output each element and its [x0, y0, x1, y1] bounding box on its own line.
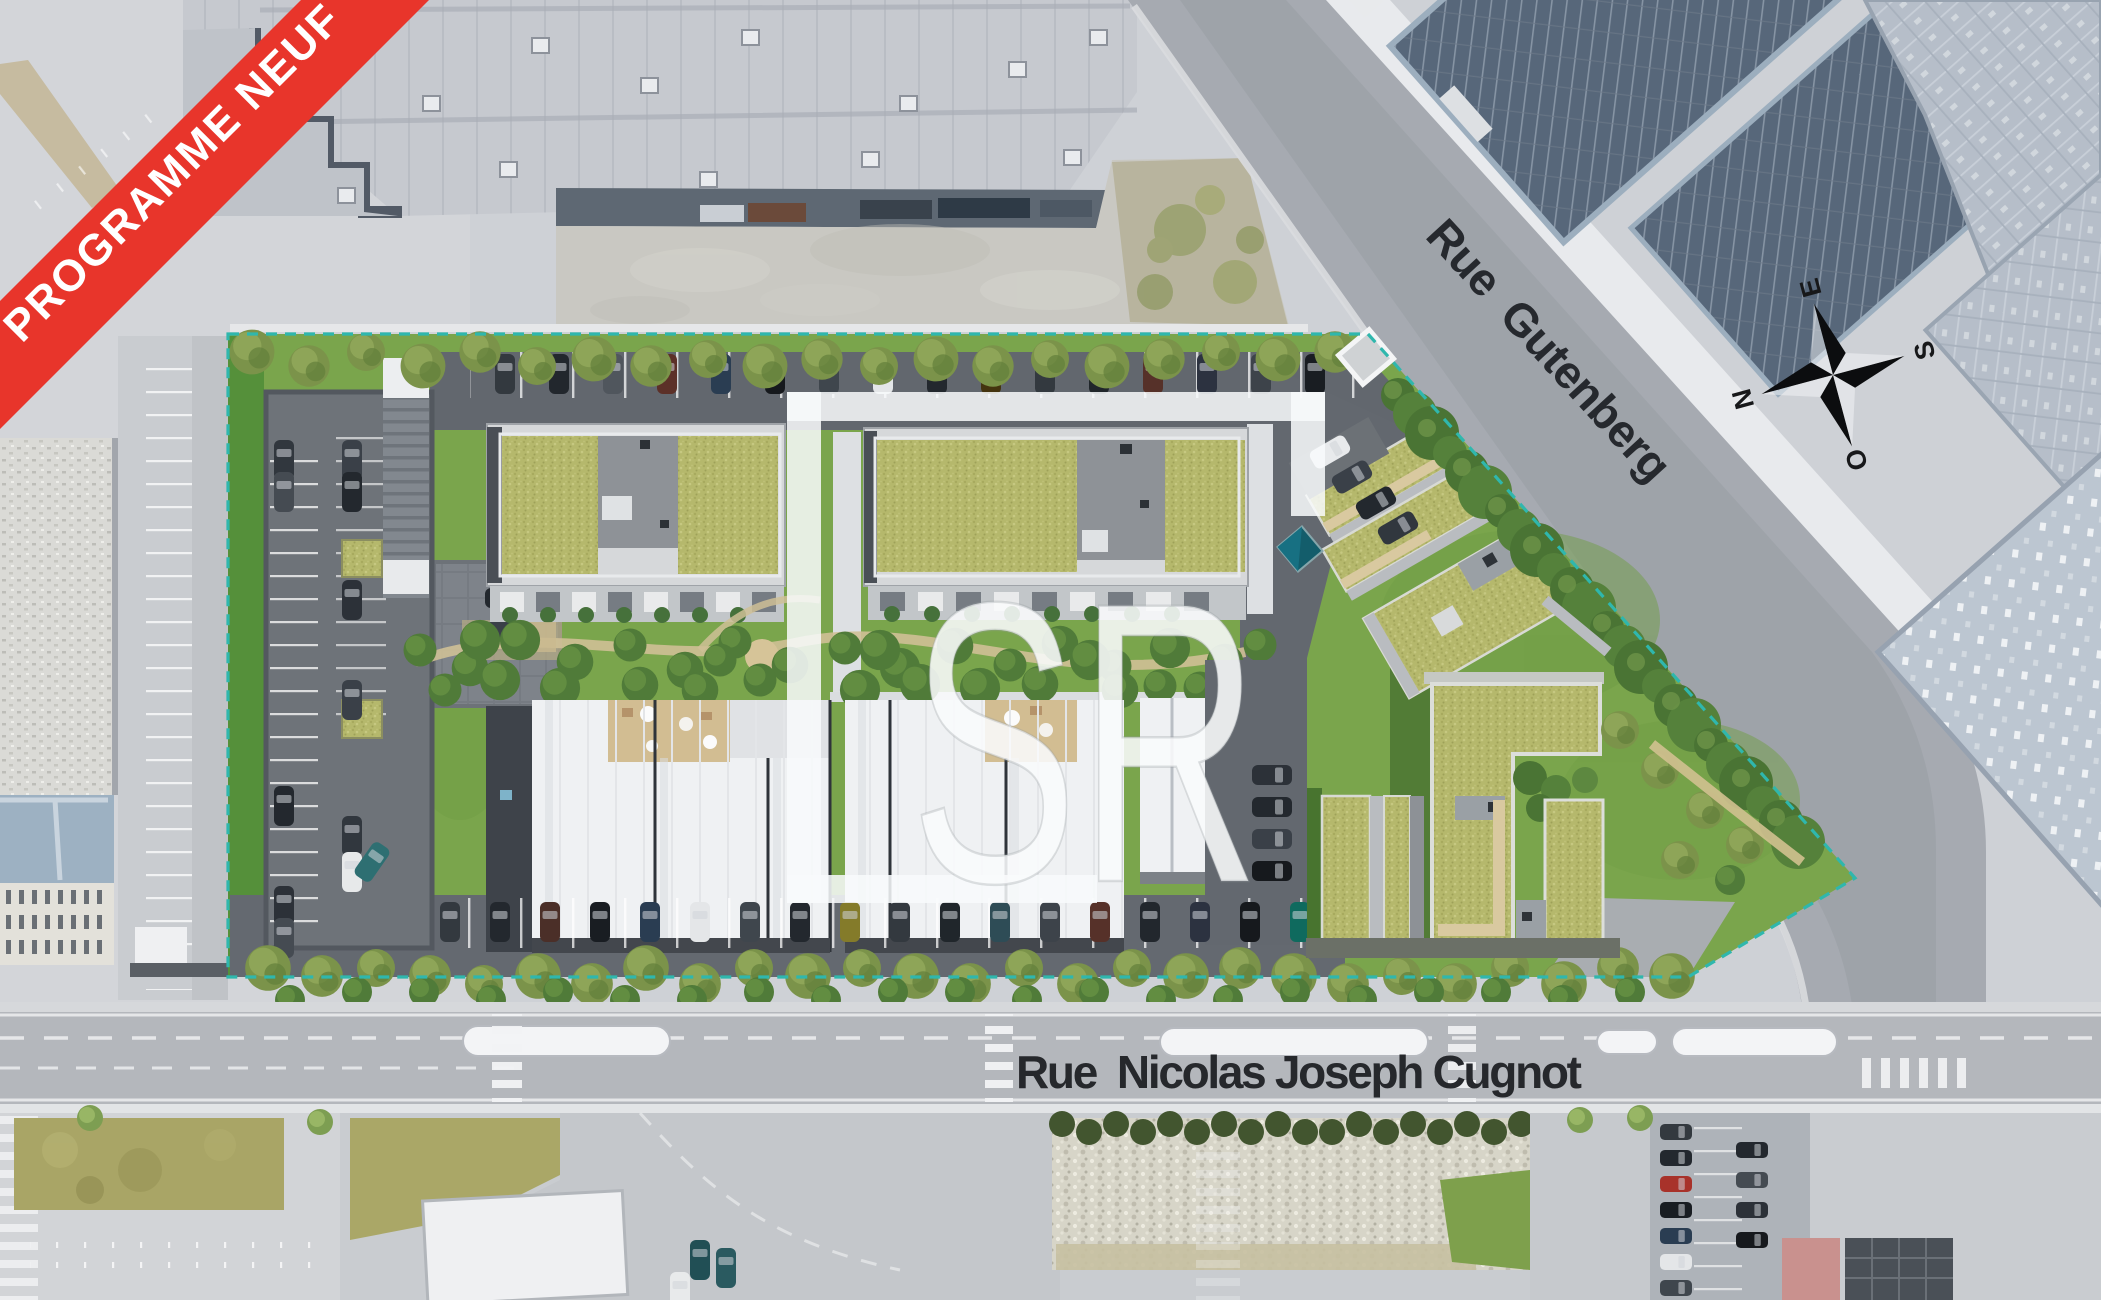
svg-text:Rue Nicolas Joseph Cugnot: Rue Nicolas Joseph Cugnot [1016, 1046, 1582, 1098]
svg-text:SR: SR [910, 518, 1260, 966]
